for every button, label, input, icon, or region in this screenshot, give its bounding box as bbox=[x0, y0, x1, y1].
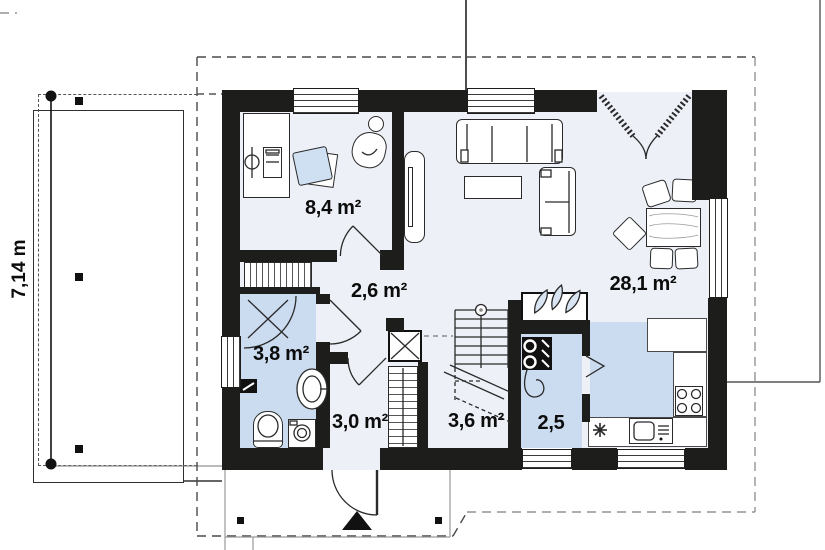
wall-vent bbox=[240, 379, 257, 393]
kitchen-counter-top bbox=[647, 318, 707, 352]
wall-bottom-1 bbox=[222, 448, 323, 470]
floor-plan: 8,4 m² 2,6 m² 28,1 m² 3,8 m² 3,0 m² 3,6 … bbox=[0, 0, 825, 550]
printer bbox=[263, 147, 282, 178]
utility-area-label: 2,5 bbox=[521, 413, 581, 433]
hall-area-label: 2,6 m² bbox=[339, 281, 419, 301]
dining-table bbox=[646, 208, 701, 247]
wardrobe bbox=[388, 366, 418, 448]
wall-utility-right-lower bbox=[582, 394, 590, 422]
wall-utility-right-upper bbox=[582, 334, 590, 356]
hob bbox=[675, 386, 703, 416]
kitchen-floor-a bbox=[590, 322, 647, 417]
sofa-large bbox=[456, 119, 563, 164]
office-area-label: 8,4 m² bbox=[293, 198, 373, 218]
armchair-cushion bbox=[368, 116, 384, 132]
kitchen-floor-b bbox=[647, 350, 673, 417]
living-area-label: 28,1 m² bbox=[593, 274, 693, 294]
wall-hall-divider bbox=[330, 352, 348, 364]
dining-chair-4 bbox=[674, 247, 698, 269]
wall-chimney-stub bbox=[386, 318, 404, 331]
chimney-shaft bbox=[388, 330, 422, 362]
wall-utility-top bbox=[508, 320, 590, 334]
porch-post-right bbox=[435, 517, 442, 524]
dining-chair-3 bbox=[650, 248, 674, 270]
carport-post-1 bbox=[75, 97, 83, 105]
fireplace bbox=[521, 292, 588, 322]
wall-stub-hall bbox=[380, 250, 404, 270]
boiler bbox=[522, 337, 552, 370]
window-kitchen bbox=[617, 449, 685, 469]
french-door-threshold bbox=[597, 92, 692, 114]
window-utility bbox=[522, 449, 572, 469]
window-office bbox=[293, 88, 359, 114]
carport-post-3 bbox=[75, 445, 83, 453]
window-bathroom bbox=[221, 336, 241, 388]
wall-wardrobe-right bbox=[418, 362, 428, 448]
wall-bottom-3 bbox=[572, 448, 617, 470]
width-dimension-label: 7,14 m bbox=[9, 234, 31, 304]
carport-post-2 bbox=[75, 273, 83, 281]
wall-top-3 bbox=[535, 90, 597, 112]
window-living-right bbox=[709, 198, 728, 298]
toilet bbox=[253, 411, 283, 448]
coffee-table bbox=[464, 176, 522, 199]
desk-chair bbox=[292, 146, 333, 187]
wall-office-living bbox=[392, 112, 404, 266]
entrance-threshold bbox=[323, 448, 380, 470]
wall-top-2 bbox=[359, 90, 467, 112]
staircase-area-label: 3,6 m² bbox=[436, 411, 516, 431]
oven-appliance bbox=[629, 418, 673, 444]
hall-closet bbox=[244, 262, 312, 288]
entrance-hall-area-label: 3,0 m² bbox=[320, 412, 400, 432]
carport-dashed-outline bbox=[38, 94, 197, 466]
sofa-small bbox=[539, 167, 576, 236]
porch-post-left bbox=[237, 517, 244, 524]
wall-bottom-2 bbox=[380, 448, 522, 470]
wall-right-lower bbox=[708, 298, 727, 470]
washing-machine bbox=[288, 419, 316, 448]
wall-left-upper bbox=[222, 90, 240, 336]
wall-bath-right-upper bbox=[316, 294, 330, 304]
window-living-top bbox=[467, 88, 535, 114]
wall-office-hall bbox=[240, 250, 337, 262]
wall-corner-ne bbox=[692, 90, 727, 200]
entrance-arrow bbox=[342, 511, 372, 530]
tv-screen bbox=[408, 167, 413, 227]
wall-closet-bath bbox=[240, 287, 320, 294]
bathroom-area-label: 3,8 m² bbox=[241, 344, 321, 364]
